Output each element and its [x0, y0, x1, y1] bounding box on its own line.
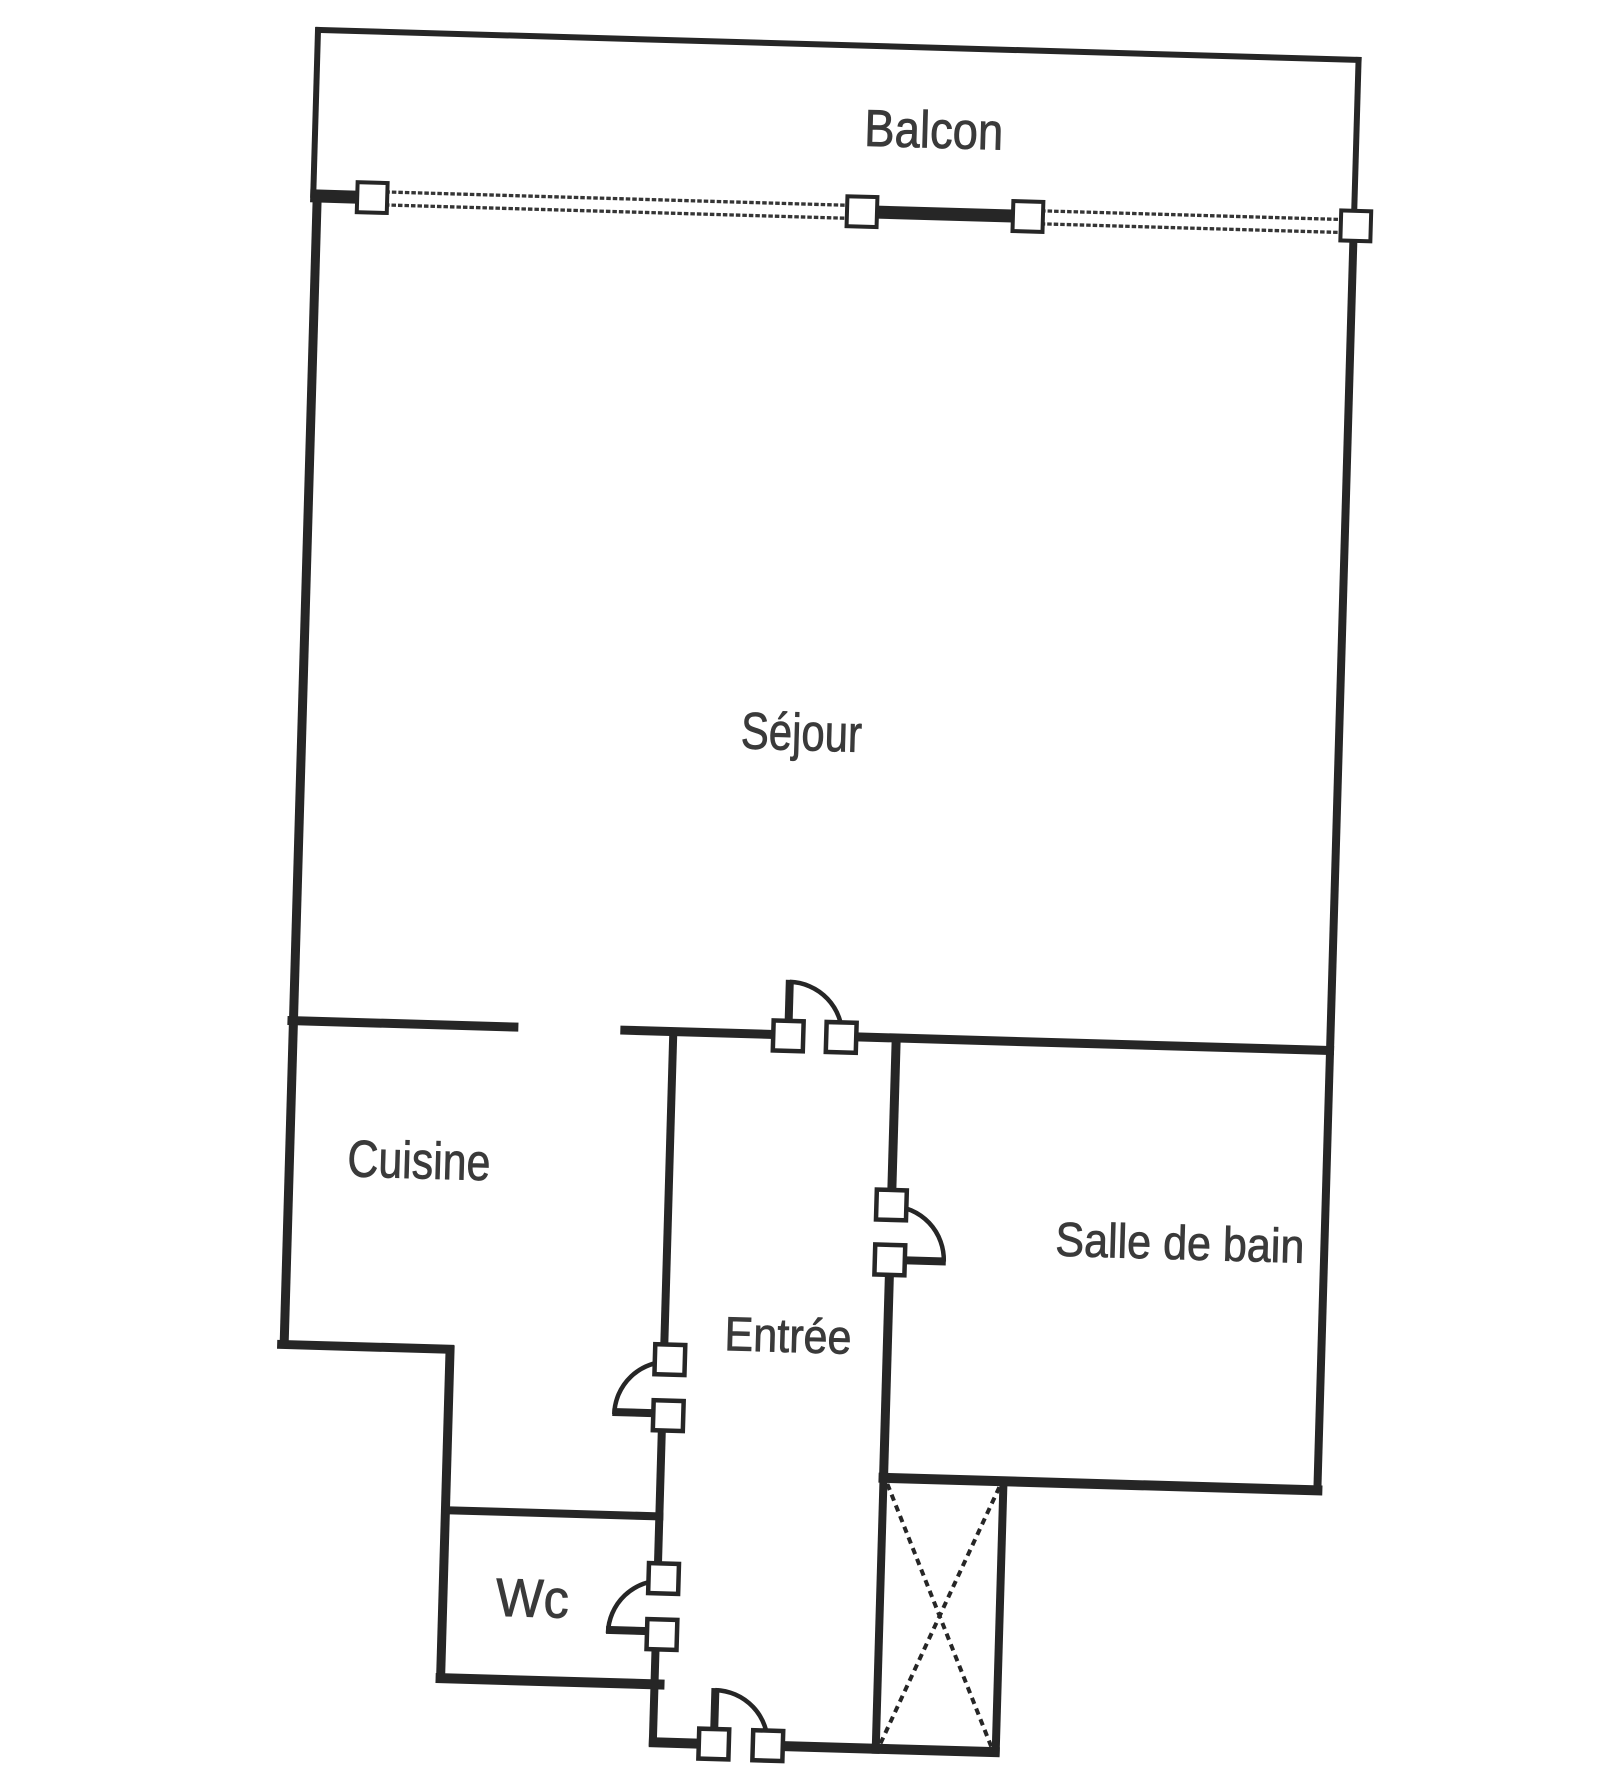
svg-text:Cuisine: Cuisine: [347, 1130, 492, 1192]
svg-text:Séjour: Séjour: [740, 702, 863, 763]
svg-text:Wc: Wc: [495, 1568, 570, 1630]
svg-text:Entrée: Entrée: [724, 1308, 852, 1365]
svg-text:Balcon: Balcon: [864, 100, 1005, 162]
svg-text:Salle de bain: Salle de bain: [1055, 1214, 1305, 1274]
